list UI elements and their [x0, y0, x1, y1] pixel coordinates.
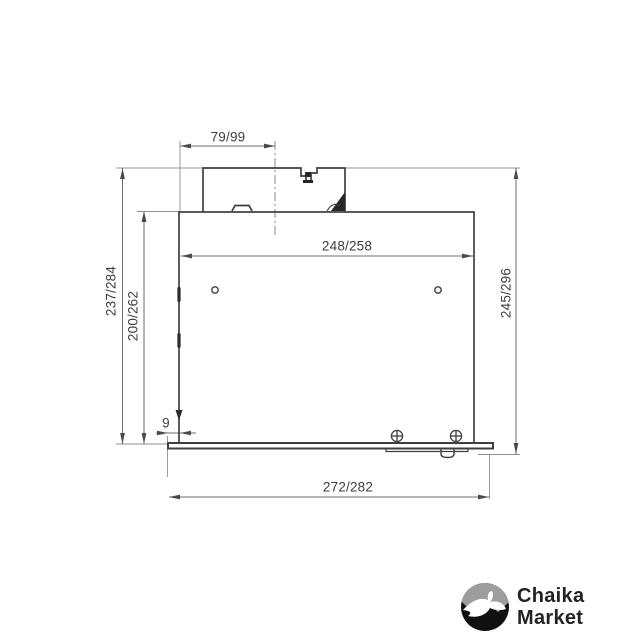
- hood-body-outline: [168, 168, 493, 458]
- extension-lines: [116, 141, 520, 499]
- dimension-lines: [123, 146, 517, 497]
- mounting-hole-left: [212, 287, 218, 293]
- hinge-mark: [176, 410, 183, 421]
- brand-name-line1: Chaika: [517, 585, 584, 607]
- gusset-triangle: [331, 192, 345, 211]
- outlet-bump: [441, 449, 454, 458]
- dim-label-bottom-overall-width: 272/282: [323, 480, 373, 495]
- bottom-plate: [168, 443, 493, 449]
- dim-label-right-overall-height: 245/296: [499, 268, 514, 318]
- duct-box: [203, 168, 345, 212]
- dim-label-left-inner-height: 200/262: [126, 291, 141, 341]
- technical-drawing-page: 79/99 248/258 237/284 200/262 245/296 9 …: [0, 0, 640, 640]
- screw-left: [391, 430, 402, 441]
- hinge-mark: [177, 287, 180, 302]
- dimension-drawing: [0, 0, 640, 640]
- dim-label-top-duct-width: 79/99: [211, 130, 246, 145]
- seagull-circle-icon: [460, 582, 510, 632]
- top-tab: [232, 206, 252, 212]
- brand-name-line2: Market: [517, 607, 584, 629]
- screw-right: [450, 430, 461, 441]
- dim-label-inner-body-width: 248/258: [322, 239, 372, 254]
- dim-label-left-outer-height: 237/284: [104, 266, 119, 316]
- brand-logo: Chaika Market: [460, 582, 584, 632]
- dim-label-bottom-left-offset: 9: [162, 416, 170, 431]
- hinge-mark: [177, 333, 180, 348]
- mounting-hole-right: [435, 287, 441, 293]
